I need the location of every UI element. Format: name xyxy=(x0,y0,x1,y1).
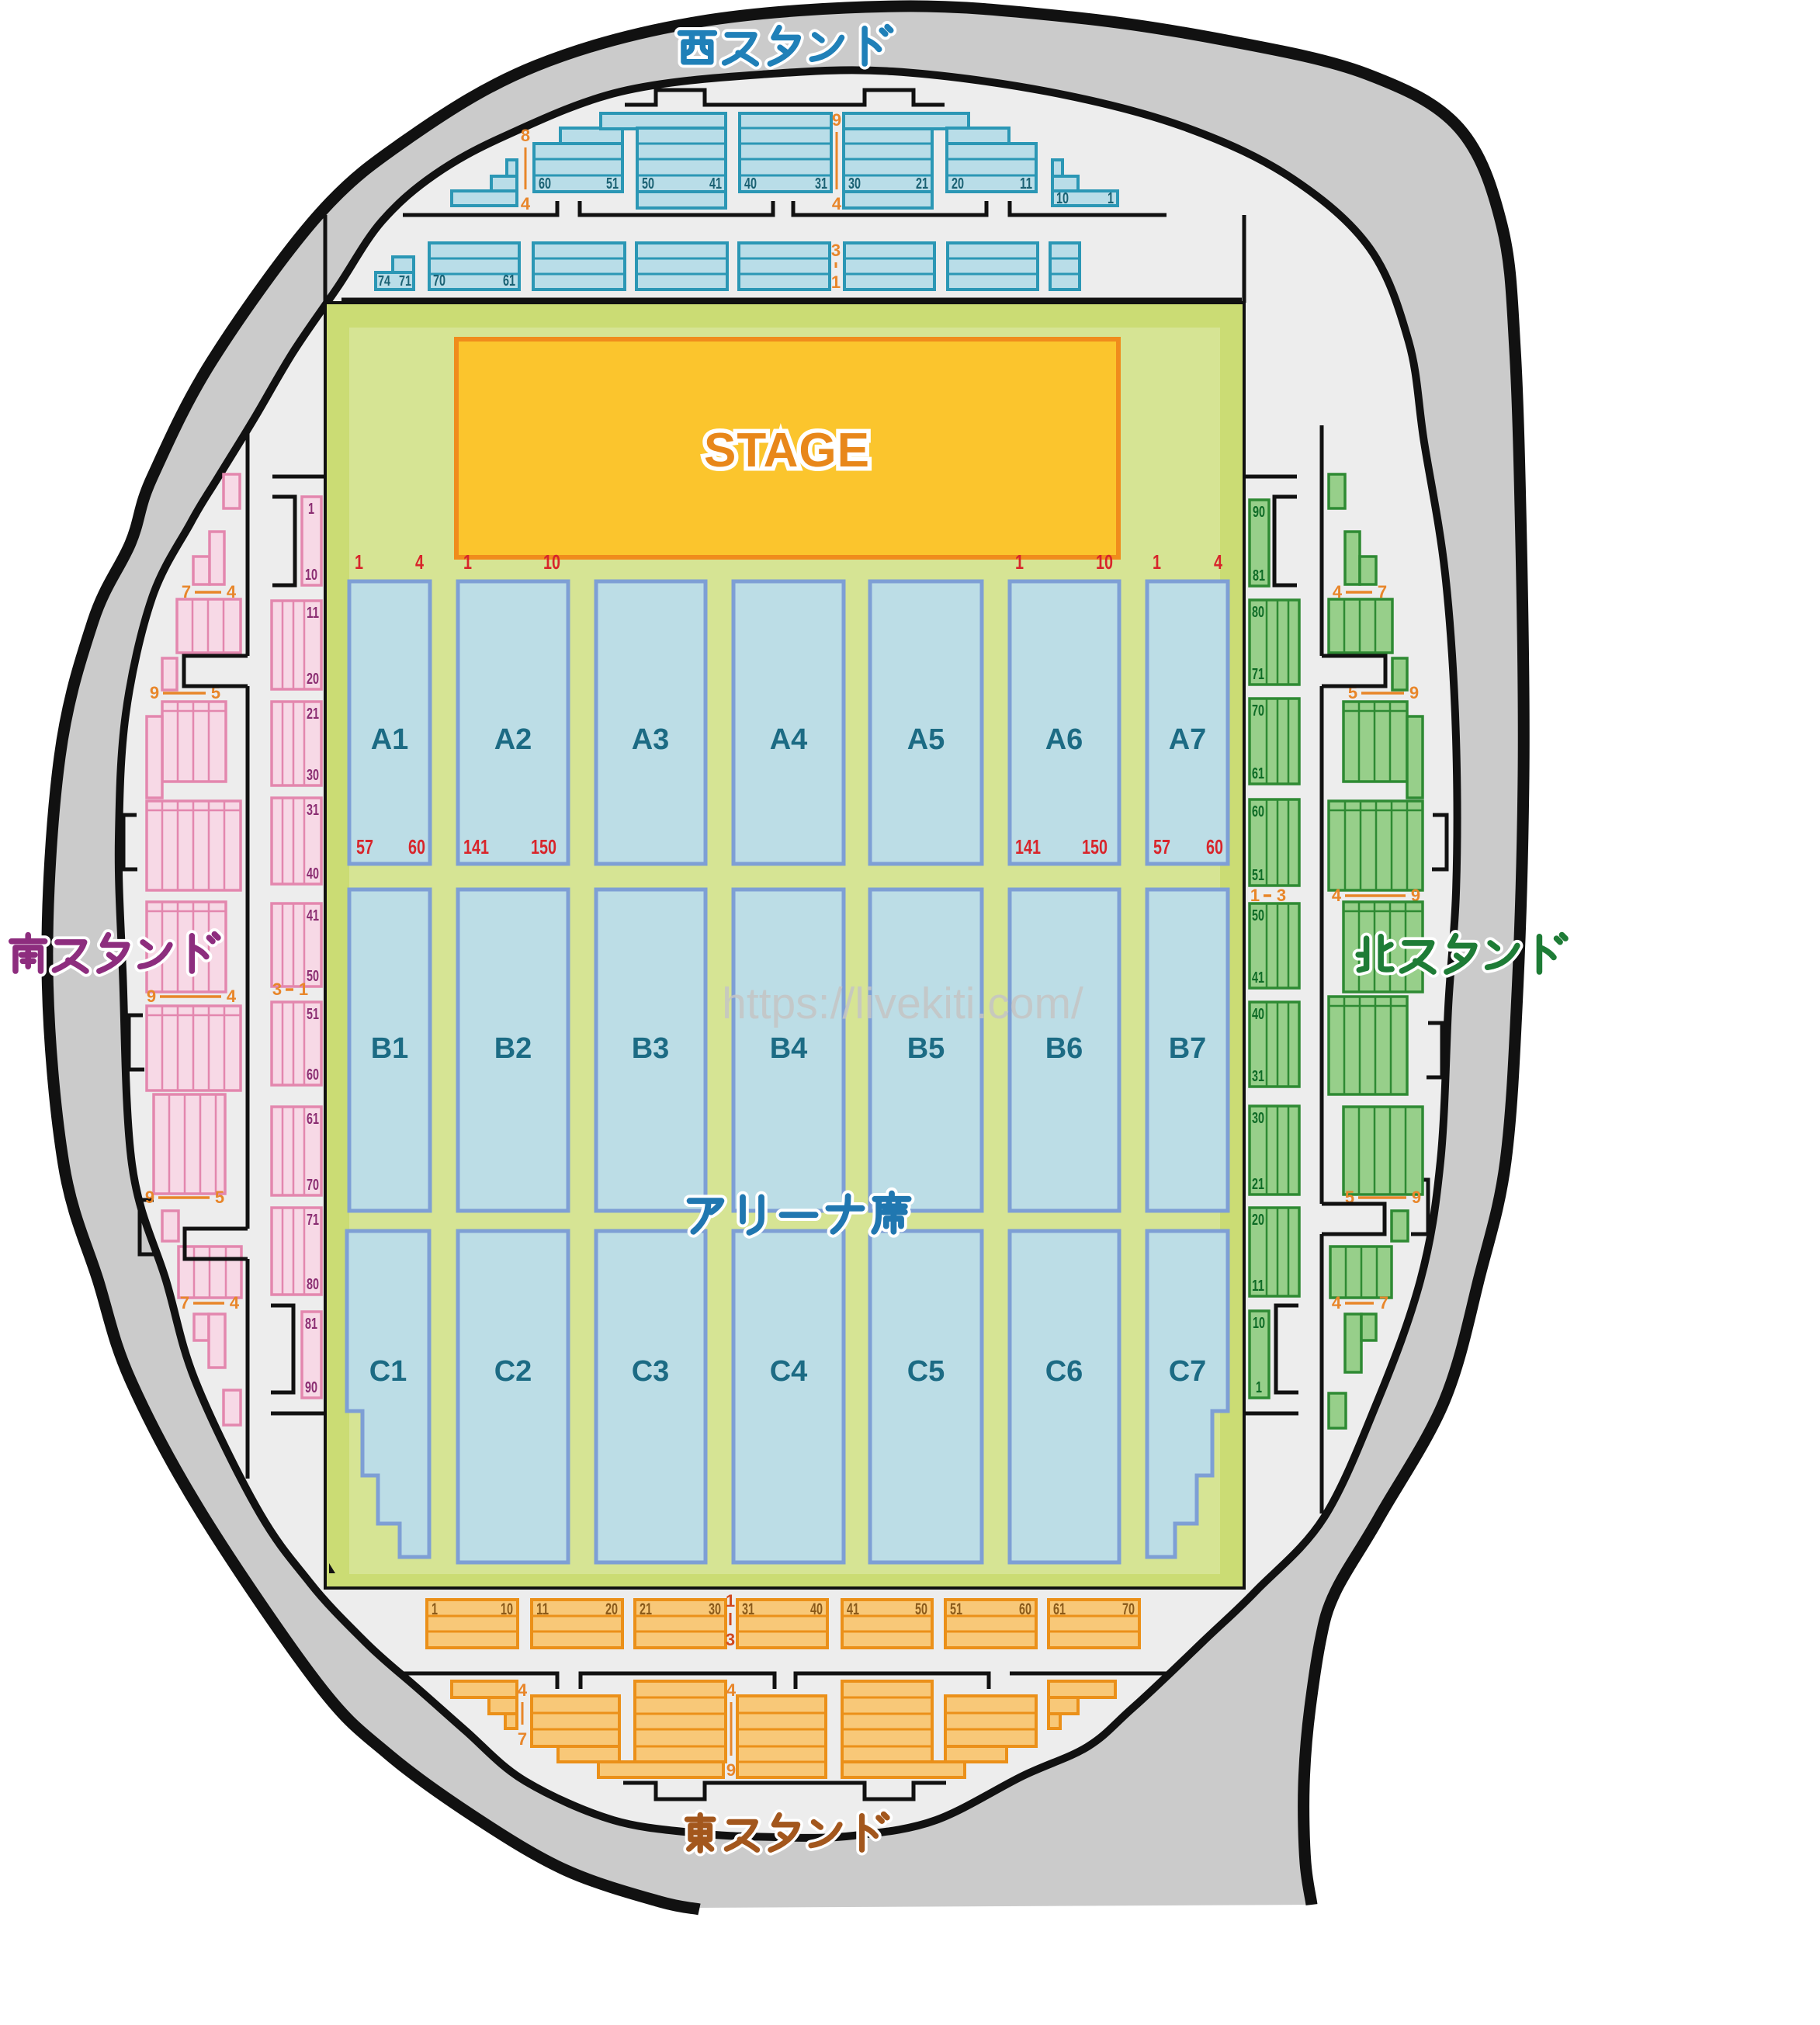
svg-text:57: 57 xyxy=(356,835,373,858)
svg-text:10: 10 xyxy=(1096,550,1113,574)
svg-text:20: 20 xyxy=(952,175,964,192)
svg-text:51: 51 xyxy=(606,175,619,192)
svg-text:80: 80 xyxy=(1252,604,1264,621)
svg-text:70: 70 xyxy=(1252,702,1264,719)
svg-text:4: 4 xyxy=(1332,886,1342,905)
svg-text:C4: C4 xyxy=(770,1355,808,1388)
svg-text:C1: C1 xyxy=(369,1355,407,1388)
svg-text:4: 4 xyxy=(230,1293,240,1312)
svg-text:7: 7 xyxy=(1379,1293,1388,1312)
svg-text:61: 61 xyxy=(503,272,515,290)
svg-text:9: 9 xyxy=(145,1188,154,1207)
svg-text:C6: C6 xyxy=(1045,1355,1083,1388)
svg-text:90: 90 xyxy=(1253,504,1265,521)
svg-text:A7: A7 xyxy=(1169,723,1207,756)
svg-text:4: 4 xyxy=(832,194,842,213)
svg-text:60: 60 xyxy=(1019,1600,1031,1618)
svg-text:10: 10 xyxy=(1056,190,1069,207)
svg-text:9: 9 xyxy=(1412,1188,1421,1207)
svg-text:B4: B4 xyxy=(770,1032,808,1065)
svg-text:1: 1 xyxy=(299,980,308,999)
svg-text:3: 3 xyxy=(272,980,282,999)
svg-text:30: 30 xyxy=(307,767,319,784)
svg-text:C7: C7 xyxy=(1169,1355,1207,1388)
svg-text:71: 71 xyxy=(307,1212,319,1229)
svg-text:57: 57 xyxy=(1153,835,1170,858)
svg-text:7: 7 xyxy=(180,1293,189,1312)
svg-text:31: 31 xyxy=(307,802,319,819)
svg-text:41: 41 xyxy=(307,907,319,924)
svg-text:31: 31 xyxy=(742,1600,754,1618)
svg-text:4: 4 xyxy=(227,986,237,1006)
svg-text:B1: B1 xyxy=(371,1032,409,1065)
svg-text:4: 4 xyxy=(521,194,531,213)
svg-text:9: 9 xyxy=(726,1760,736,1780)
svg-text:1: 1 xyxy=(831,272,841,292)
svg-text:9: 9 xyxy=(832,110,841,130)
svg-text:C2: C2 xyxy=(494,1355,532,1388)
svg-text:41: 41 xyxy=(847,1600,859,1618)
svg-text:30: 30 xyxy=(848,175,861,192)
svg-text:20: 20 xyxy=(307,671,319,688)
svg-text:60: 60 xyxy=(408,835,425,858)
svg-text:B3: B3 xyxy=(632,1032,670,1065)
svg-text:30: 30 xyxy=(1252,1110,1264,1127)
svg-text:141: 141 xyxy=(1015,835,1041,858)
svg-text:31: 31 xyxy=(815,175,827,192)
svg-text:51: 51 xyxy=(1252,867,1264,884)
svg-text:11: 11 xyxy=(1020,175,1032,192)
svg-text:40: 40 xyxy=(744,175,757,192)
svg-text:10: 10 xyxy=(501,1600,513,1618)
svg-text:C3: C3 xyxy=(632,1355,670,1388)
svg-text:20: 20 xyxy=(605,1600,618,1618)
svg-text:70: 70 xyxy=(307,1177,319,1194)
svg-text:74: 74 xyxy=(378,273,390,289)
svg-text:STAGE: STAGE xyxy=(704,424,870,477)
svg-text:5: 5 xyxy=(215,1188,224,1207)
svg-text:51: 51 xyxy=(307,1006,319,1023)
svg-text:81: 81 xyxy=(305,1316,317,1333)
svg-text:7: 7 xyxy=(518,1729,527,1749)
svg-text:10: 10 xyxy=(305,567,317,584)
svg-text:21: 21 xyxy=(1252,1176,1264,1193)
svg-text:4: 4 xyxy=(518,1680,528,1700)
svg-text:141: 141 xyxy=(463,835,489,858)
svg-text:A3: A3 xyxy=(632,723,670,756)
svg-text:11: 11 xyxy=(536,1600,549,1618)
svg-text:21: 21 xyxy=(916,175,928,192)
svg-text:40: 40 xyxy=(307,865,319,882)
svg-text:1: 1 xyxy=(1250,886,1260,905)
svg-text:20: 20 xyxy=(1252,1212,1264,1229)
svg-text:B5: B5 xyxy=(907,1032,945,1065)
svg-text:51: 51 xyxy=(950,1600,962,1618)
svg-text:21: 21 xyxy=(640,1600,652,1618)
svg-text:11: 11 xyxy=(307,605,319,622)
svg-text:3: 3 xyxy=(726,1630,735,1649)
svg-text:40: 40 xyxy=(1252,1006,1264,1023)
svg-text:50: 50 xyxy=(1252,907,1264,924)
svg-text:10: 10 xyxy=(1253,1315,1265,1332)
svg-text:9: 9 xyxy=(147,986,156,1006)
svg-text:4: 4 xyxy=(726,1680,737,1700)
svg-text:https://livekiti.com/: https://livekiti.com/ xyxy=(722,979,1083,1028)
svg-text:71: 71 xyxy=(1252,666,1264,683)
svg-text:1: 1 xyxy=(1108,190,1114,207)
svg-text:1: 1 xyxy=(463,550,472,574)
svg-text:8: 8 xyxy=(521,126,530,145)
svg-text:1: 1 xyxy=(308,501,314,518)
svg-text:40: 40 xyxy=(810,1600,823,1618)
svg-text:60: 60 xyxy=(1206,835,1223,858)
svg-text:61: 61 xyxy=(307,1111,319,1128)
svg-text:B7: B7 xyxy=(1169,1032,1207,1065)
svg-text:1: 1 xyxy=(1015,550,1024,574)
svg-text:A6: A6 xyxy=(1045,723,1083,756)
svg-text:71: 71 xyxy=(399,273,411,289)
svg-text:50: 50 xyxy=(915,1600,927,1618)
svg-text:A4: A4 xyxy=(770,723,808,756)
svg-text:1: 1 xyxy=(1153,550,1161,574)
svg-text:A5: A5 xyxy=(907,723,945,756)
svg-text:4: 4 xyxy=(415,550,424,574)
svg-text:61: 61 xyxy=(1053,1600,1066,1618)
svg-text:C5: C5 xyxy=(907,1355,945,1388)
svg-text:1: 1 xyxy=(432,1600,438,1618)
svg-text:B6: B6 xyxy=(1045,1032,1083,1065)
svg-text:60: 60 xyxy=(539,175,551,192)
svg-text:3: 3 xyxy=(1277,886,1286,905)
svg-text:11: 11 xyxy=(1252,1278,1264,1295)
svg-text:A1: A1 xyxy=(371,723,409,756)
svg-text:70: 70 xyxy=(433,272,445,290)
svg-text:150: 150 xyxy=(1082,835,1108,858)
svg-text:9: 9 xyxy=(150,683,159,702)
svg-text:81: 81 xyxy=(1253,567,1265,584)
svg-text:30: 30 xyxy=(709,1600,721,1618)
svg-text:41: 41 xyxy=(709,175,722,192)
svg-text:21: 21 xyxy=(307,706,319,723)
svg-text:70: 70 xyxy=(1122,1600,1135,1618)
svg-text:41: 41 xyxy=(1252,969,1264,986)
svg-text:3: 3 xyxy=(831,241,841,260)
svg-text:80: 80 xyxy=(307,1276,319,1293)
svg-text:150: 150 xyxy=(531,835,556,858)
svg-text:60: 60 xyxy=(307,1066,319,1084)
svg-text:4: 4 xyxy=(1214,550,1222,574)
svg-text:1: 1 xyxy=(1256,1379,1262,1396)
svg-text:61: 61 xyxy=(1252,765,1264,782)
svg-text:50: 50 xyxy=(642,175,654,192)
svg-text:1: 1 xyxy=(355,550,363,574)
svg-text:60: 60 xyxy=(1252,803,1264,820)
svg-text:A2: A2 xyxy=(494,723,532,756)
svg-text:50: 50 xyxy=(307,968,319,985)
svg-text:9: 9 xyxy=(1409,683,1419,702)
svg-text:4: 4 xyxy=(1332,1293,1342,1312)
svg-text:90: 90 xyxy=(305,1379,317,1396)
svg-text:B2: B2 xyxy=(494,1032,532,1065)
svg-text:31: 31 xyxy=(1252,1068,1264,1085)
svg-text:10: 10 xyxy=(543,550,560,574)
svg-text:1: 1 xyxy=(726,1591,735,1611)
